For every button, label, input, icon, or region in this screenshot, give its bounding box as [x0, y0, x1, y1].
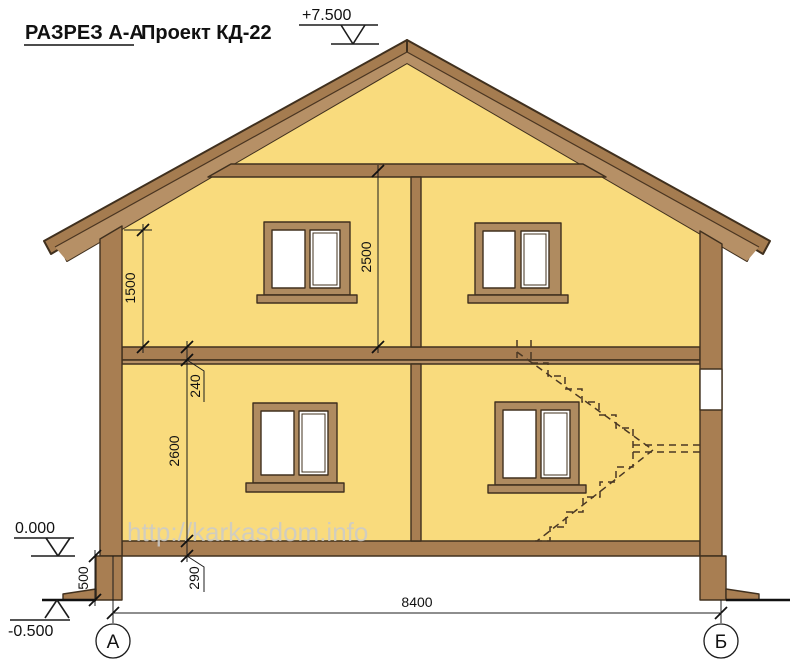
- foundation-right: [700, 556, 726, 600]
- dim-2500: 2500: [358, 241, 374, 272]
- elevation-zero-value: 0.000: [15, 520, 55, 537]
- window-pane: [541, 410, 570, 478]
- window-pane: [299, 411, 328, 475]
- window-pane: [310, 230, 340, 288]
- dim-500: 500: [75, 566, 91, 590]
- elevation-mark-ground: -0.500: [8, 600, 70, 640]
- window-pane: [261, 411, 294, 475]
- dim-240: 240: [187, 374, 203, 398]
- window-1f-left: [246, 403, 344, 492]
- window-2f-right: [468, 223, 568, 303]
- window-2f-left: [257, 222, 357, 303]
- axis-label-left: А: [107, 632, 120, 653]
- wall-left: [100, 226, 122, 556]
- window-pane: [272, 230, 305, 288]
- first-floor-partition: [411, 364, 421, 541]
- blind-area-right: [726, 589, 759, 600]
- dim-1500: 1500: [122, 272, 138, 303]
- dim-8400: 8400: [401, 594, 432, 610]
- window-sill: [257, 295, 357, 303]
- dim-290: 290: [186, 566, 202, 590]
- window-sill: [468, 295, 568, 303]
- right-wall-opening: [700, 369, 722, 410]
- drawing-title: РАЗРЕЗ А-А Проект КД-22: [24, 22, 272, 45]
- attic-ceiling-beam: [208, 164, 606, 177]
- window-pane: [483, 231, 515, 288]
- elevation-mark-zero: 0.000: [14, 520, 75, 556]
- foundation-left: [96, 556, 122, 600]
- axis-label-right: Б: [715, 632, 727, 653]
- title-section: РАЗРЕЗ А-А: [25, 22, 144, 44]
- elevation-ridge-value: +7.500: [302, 7, 351, 24]
- window-sill: [488, 485, 586, 493]
- elevation-ground-value: -0.500: [8, 623, 53, 640]
- window-1f-right: [488, 402, 586, 493]
- interfloor-beam: [122, 347, 700, 360]
- axis-marker-right: Б: [704, 600, 738, 658]
- second-floor-partition: [411, 177, 421, 347]
- window-sill: [246, 483, 344, 492]
- elevation-mark-ridge: +7.500: [299, 7, 379, 44]
- window-pane: [521, 231, 549, 288]
- window-pane: [503, 410, 536, 478]
- title-project: Проект КД-22: [141, 22, 272, 44]
- section-drawing: http://karkasdom.info 1500 2500 240 2600…: [0, 0, 800, 662]
- drawing-canvas: http://karkasdom.info 1500 2500 240 2600…: [0, 0, 800, 662]
- dim-2600: 2600: [166, 435, 182, 466]
- watermark-text: http://karkasdom.info: [127, 517, 368, 547]
